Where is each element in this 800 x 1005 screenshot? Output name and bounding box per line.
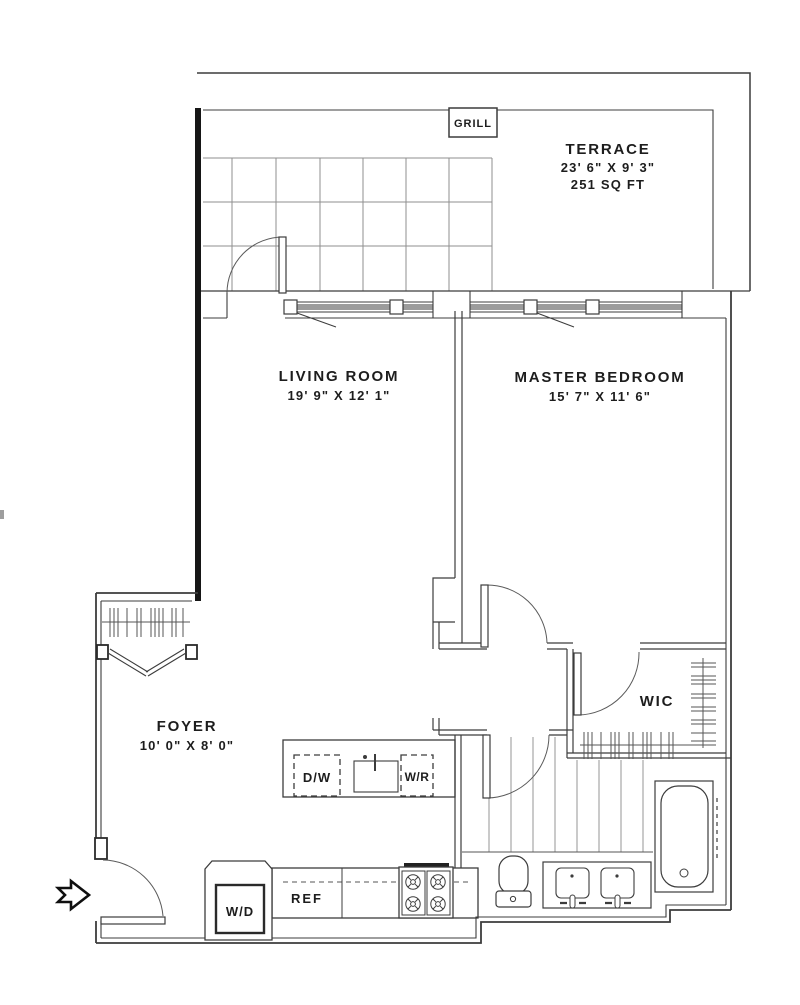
foyer-dims: 10' 0" X 8' 0" <box>140 738 235 753</box>
washer-dryer: W/D <box>205 861 272 940</box>
master-bedroom-name: MASTER BEDROOM <box>514 369 685 386</box>
entry-arrow <box>58 881 89 909</box>
refrigerator-label: REF <box>291 891 323 906</box>
terrace-name: TERRACE <box>565 141 650 158</box>
stove <box>399 863 453 918</box>
terrace-paver-grid <box>203 158 492 291</box>
window-glass-bedroom <box>470 304 682 310</box>
bathroom-door-leaf <box>483 735 490 798</box>
upper-counter <box>283 740 455 797</box>
floor-plan-canvas: GRILL TERRACE 23' 6" X 9' 3" 251 SQ FT <box>0 0 800 1005</box>
bathroom-floor-tiles <box>489 737 643 852</box>
wic-name: WIC <box>640 693 675 710</box>
washer-dryer-label: W/D <box>226 904 254 919</box>
master-bedroom-dims: 15' 7" X 11' 6" <box>549 389 651 404</box>
exterior-walls <box>96 108 731 943</box>
terrace-door <box>227 237 286 293</box>
bedroom-door <box>481 585 547 647</box>
master-bedroom: MASTER BEDROOM 15' 7" X 11' 6" <box>481 369 686 647</box>
closet-jamb-left <box>97 645 108 659</box>
toilet <box>496 856 531 907</box>
terrace-door-leaf <box>279 237 286 293</box>
living-room: LIVING ROOM 19' 9" X 12' 1" <box>227 237 399 403</box>
closet-jamb-right <box>186 645 197 659</box>
terrace-dims: 23' 6" X 9' 3" <box>561 160 656 175</box>
kitchen-sink <box>354 754 398 792</box>
living-room-dims: 19' 9" X 12' 1" <box>287 388 390 403</box>
terrace-area: 251 SQ FT <box>571 177 645 192</box>
window-wall <box>197 291 750 327</box>
entry-door <box>95 838 165 924</box>
entry-jamb <box>95 838 107 859</box>
walk-in-closet: WIC <box>574 652 716 759</box>
closet-bifold-doors <box>108 649 186 676</box>
entry-door-leaf <box>101 917 165 924</box>
foyer-name: FOYER <box>157 718 218 735</box>
double-vanity <box>543 862 651 908</box>
kitchen: D/W W/R REF W/D <box>205 740 478 940</box>
wine-ref-label: W/R <box>405 770 430 784</box>
living-room-name: LIVING ROOM <box>279 368 400 385</box>
wic-door-leaf <box>574 653 581 715</box>
dishwasher-label: D/W <box>303 770 331 785</box>
edge-artifact <box>0 510 4 519</box>
grill-label: GRILL <box>454 118 492 130</box>
bathroom <box>462 735 717 908</box>
floor-plan-drawing: GRILL TERRACE 23' 6" X 9' 3" 251 SQ FT <box>0 0 800 1005</box>
coat-closet <box>97 608 197 676</box>
window-glass-living <box>285 304 433 310</box>
wic-door <box>574 652 639 715</box>
bathroom-door <box>483 735 549 798</box>
bedroom-door-leaf <box>481 585 488 647</box>
bathtub <box>655 781 717 892</box>
